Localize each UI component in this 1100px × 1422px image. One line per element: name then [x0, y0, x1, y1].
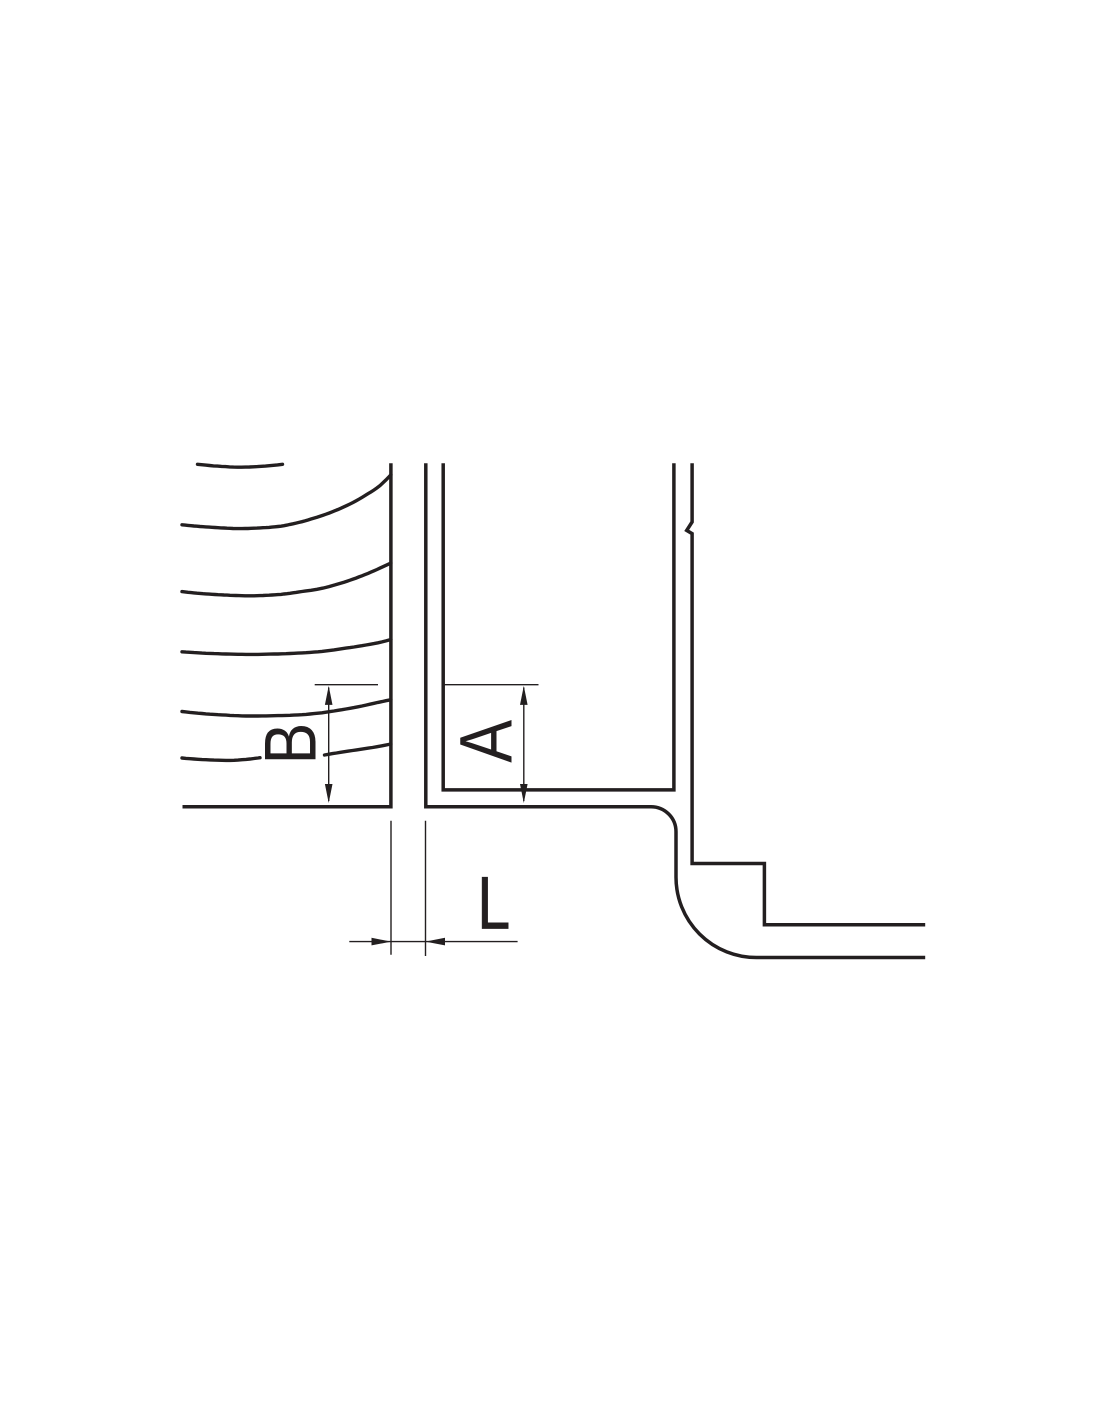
svg-text:A: A [444, 719, 527, 763]
svg-text:B: B [250, 723, 332, 765]
svg-text:L: L [477, 862, 510, 945]
